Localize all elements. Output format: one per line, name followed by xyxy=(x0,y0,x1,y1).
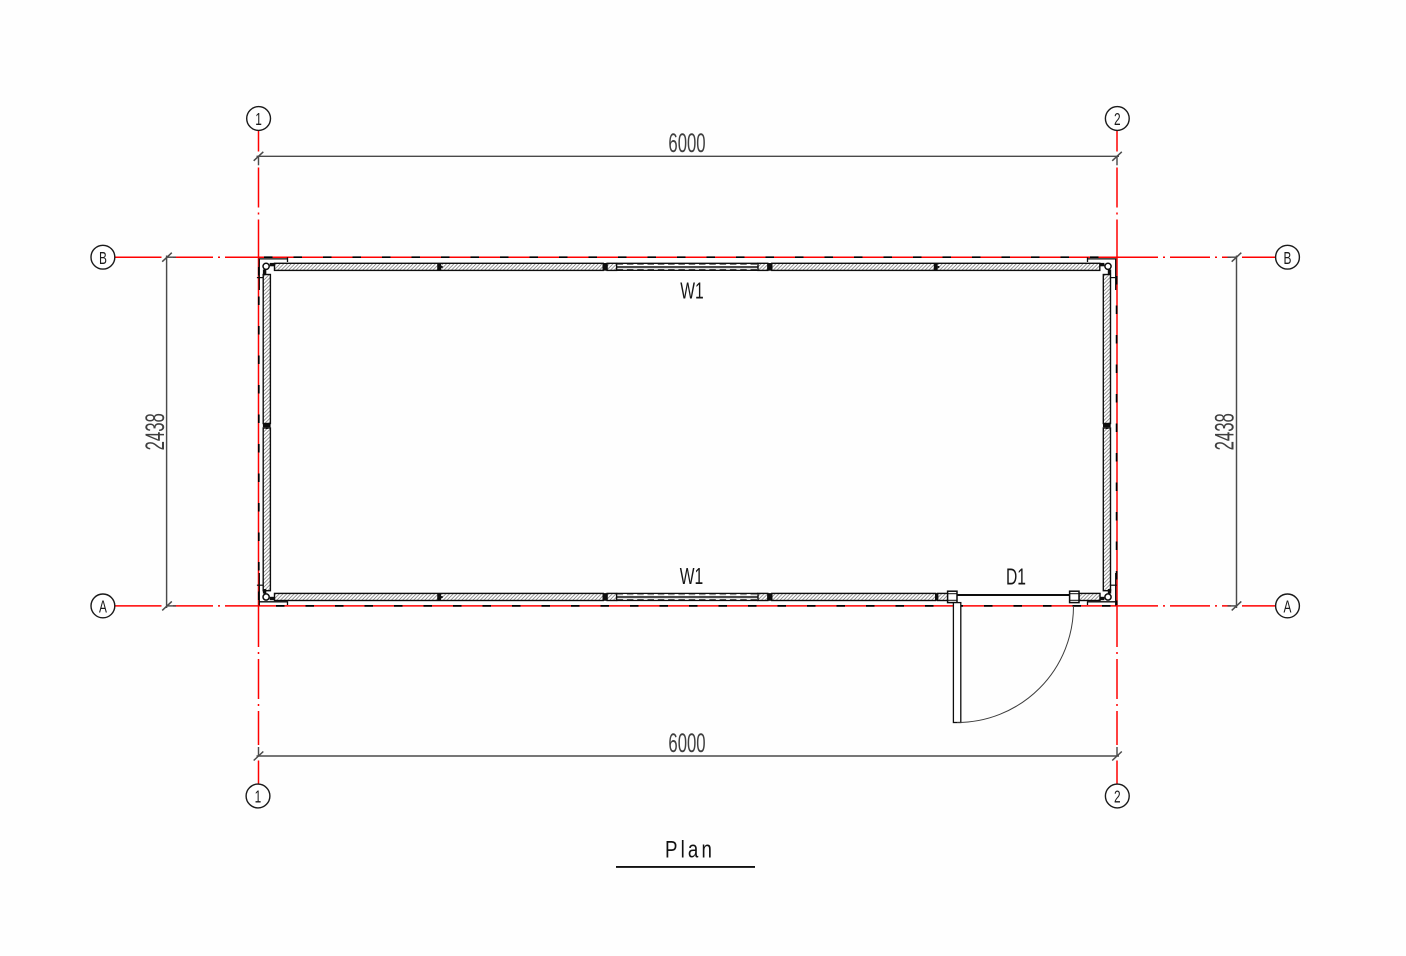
svg-text:2: 2 xyxy=(1114,110,1121,130)
svg-text:D1: D1 xyxy=(1006,565,1026,591)
svg-text:1: 1 xyxy=(255,787,262,807)
svg-text:A: A xyxy=(1284,597,1293,617)
svg-text:B: B xyxy=(1284,248,1292,268)
svg-text:B: B xyxy=(99,248,107,268)
svg-text:W1: W1 xyxy=(680,279,703,305)
svg-text:6000: 6000 xyxy=(668,728,705,758)
svg-text:2: 2 xyxy=(1114,787,1121,807)
svg-text:W1: W1 xyxy=(680,564,703,590)
svg-text:Plan: Plan xyxy=(665,836,715,863)
svg-text:A: A xyxy=(99,597,108,617)
svg-text:2438: 2438 xyxy=(1210,413,1240,450)
svg-text:2438: 2438 xyxy=(140,413,170,450)
svg-text:6000: 6000 xyxy=(668,128,705,158)
svg-text:1: 1 xyxy=(255,110,262,130)
